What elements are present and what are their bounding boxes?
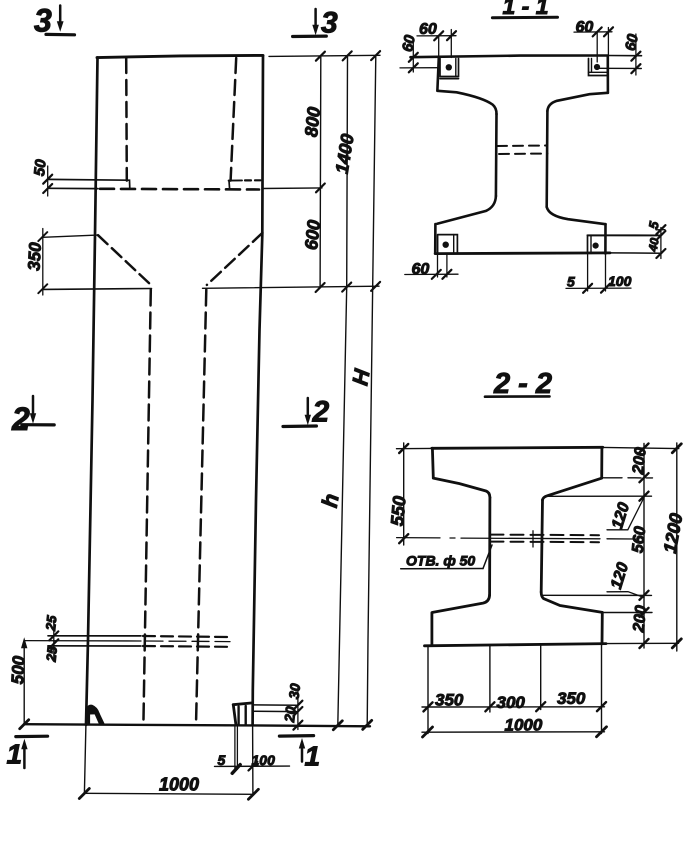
svg-text:300: 300 (497, 693, 526, 712)
svg-text:120: 120 (608, 561, 632, 592)
svg-text:25: 25 (43, 645, 60, 663)
svg-text:25: 25 (43, 614, 60, 632)
svg-text:1000: 1000 (505, 716, 543, 735)
svg-text:60: 60 (622, 32, 642, 52)
svg-text:60: 60 (576, 19, 594, 36)
svg-text:20: 20 (281, 705, 299, 723)
svg-text:800: 800 (301, 106, 324, 138)
svg-text:100: 100 (608, 273, 632, 289)
svg-text:5: 5 (646, 220, 662, 230)
svg-text:60: 60 (412, 261, 430, 278)
svg-text:1200: 1200 (660, 512, 684, 555)
svg-text:350: 350 (25, 241, 45, 271)
svg-text:40: 40 (645, 237, 661, 254)
svg-text:2: 2 (11, 401, 30, 437)
svg-text:600: 600 (301, 219, 324, 251)
svg-text:500: 500 (8, 655, 28, 685)
svg-text:2: 2 (312, 396, 330, 429)
svg-text:50: 50 (31, 158, 50, 177)
svg-text:5: 5 (567, 274, 575, 290)
svg-text:1: 1 (7, 739, 23, 770)
svg-text:100: 100 (252, 752, 276, 768)
svg-text:1000: 1000 (159, 775, 199, 795)
svg-text:200: 200 (630, 604, 650, 633)
svg-text:1400: 1400 (332, 132, 358, 175)
svg-text:350: 350 (435, 691, 464, 710)
svg-text:350: 350 (557, 689, 586, 708)
svg-text:ОТВ. ф 50: ОТВ. ф 50 (406, 553, 475, 569)
svg-text:60: 60 (399, 33, 419, 53)
svg-text:560: 560 (630, 525, 650, 553)
svg-text:1: 1 (305, 741, 321, 772)
svg-text:h: h (317, 492, 344, 510)
svg-text:200: 200 (630, 446, 650, 475)
svg-text:550: 550 (387, 495, 410, 527)
svg-text:30: 30 (286, 682, 304, 699)
svg-text:5: 5 (218, 752, 226, 768)
svg-text:H: H (347, 366, 375, 387)
